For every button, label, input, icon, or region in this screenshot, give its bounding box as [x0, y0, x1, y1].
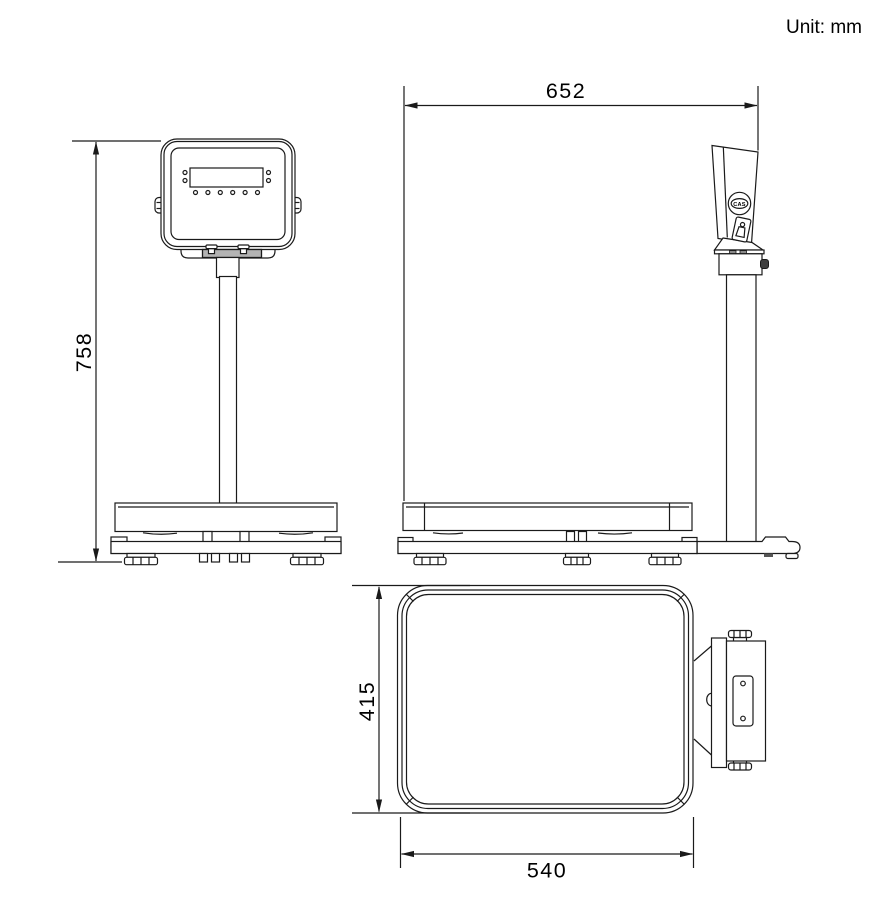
front-base-frame [111, 542, 341, 554]
side-bracket-knob [761, 260, 769, 269]
top-indicator-head [694, 631, 766, 771]
front-platform-base [111, 503, 341, 565]
unit-label: Unit: mm [786, 17, 862, 38]
dim-overall-height-label: 758 [72, 332, 96, 372]
side-pole [719, 254, 769, 543]
front-pole-upper [217, 258, 240, 278]
brand-label: CAS [733, 202, 745, 208]
side-foot-right [649, 554, 681, 565]
top-platform-outer [398, 586, 694, 814]
front-bracket-bolt-left [209, 249, 215, 254]
drawing-page: CAS [0, 0, 870, 907]
dim-platform-length-label: 540 [527, 859, 567, 883]
dim-overall-depth-label: 652 [546, 79, 586, 103]
side-pole-column [727, 275, 757, 543]
side-foot-center [564, 554, 591, 565]
side-foot-left [414, 554, 446, 565]
top-view [398, 586, 766, 814]
front-pole-column [220, 277, 237, 504]
side-rear-foot [786, 554, 798, 559]
front-indicator-head [155, 139, 301, 258]
side-pole-bracket [719, 254, 762, 275]
side-indicator-head: CAS [712, 146, 764, 254]
top-head-label [733, 676, 753, 726]
front-pole [203, 245, 262, 504]
front-head-bezel [164, 142, 292, 247]
top-pivot-bump [707, 693, 712, 706]
top-knob-bottom [729, 763, 752, 770]
top-head-bracket-plate [712, 638, 727, 768]
dim-overall-depth: 652 [404, 79, 758, 501]
top-platform [398, 586, 694, 814]
top-knob-top [729, 631, 752, 638]
front-view [111, 139, 341, 565]
front-foot-right [291, 554, 324, 565]
side-base-frame [398, 542, 697, 554]
front-bracket-bolt-right [241, 249, 247, 254]
dim-overall-height: 758 [58, 141, 161, 562]
side-view: CAS [398, 146, 800, 565]
dim-platform-length: 540 [401, 817, 694, 883]
scale-dimension-drawing: CAS [0, 0, 870, 907]
front-foot-left [125, 554, 158, 565]
dim-platform-depth-label: 415 [355, 681, 379, 721]
